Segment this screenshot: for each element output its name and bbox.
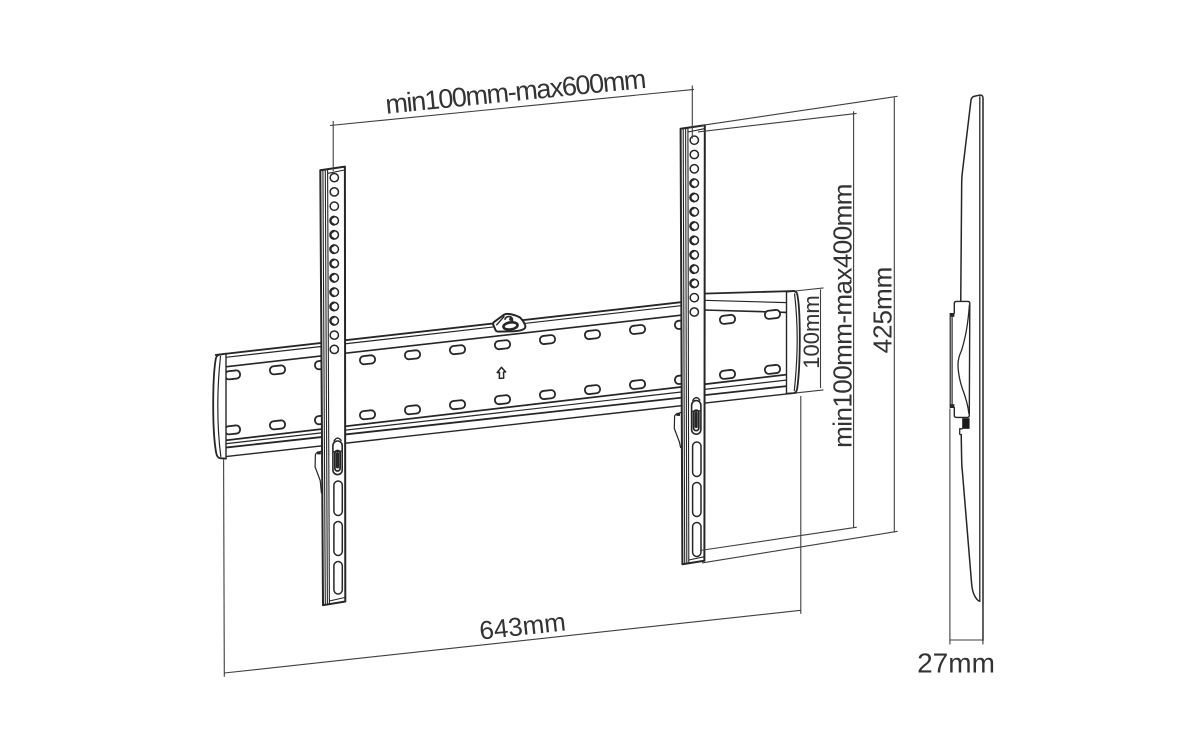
svg-text:425mm: 425mm <box>867 267 897 354</box>
svg-text:min100mm-max400mm: min100mm-max400mm <box>828 184 858 448</box>
svg-text:27mm: 27mm <box>917 648 995 679</box>
svg-text:100mm: 100mm <box>799 295 824 368</box>
